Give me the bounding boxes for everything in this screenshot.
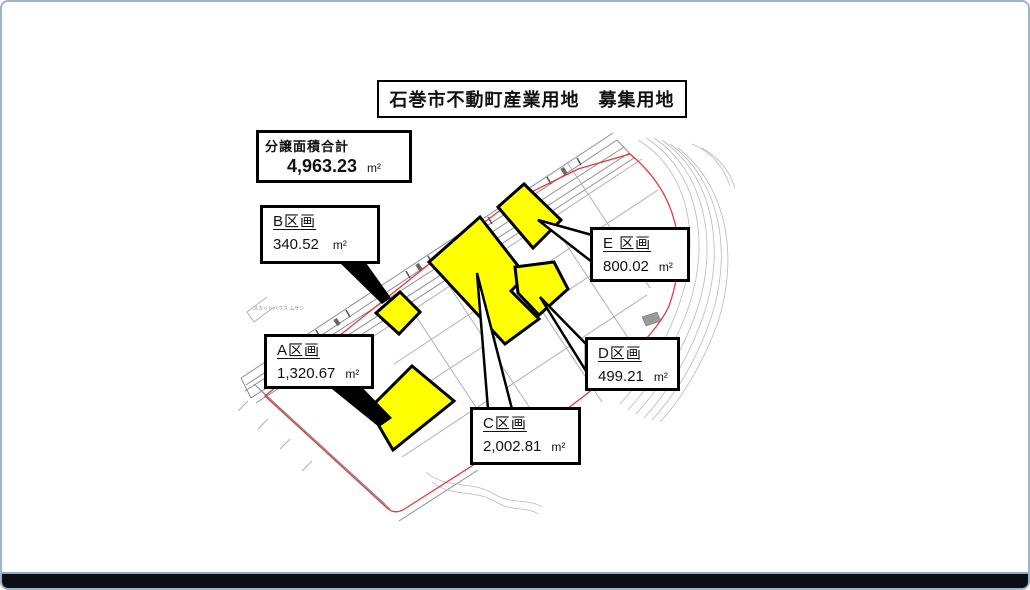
plot-a-label: A区画 — [277, 342, 320, 361]
plot-d-area: 499.21m² — [598, 368, 671, 387]
plot-e-unit: m² — [659, 260, 673, 274]
slide-canvas: スカットハウス ムサシ 石巻市不動町産業用地 募集用地 分譲面積合計 4,963… — [0, 0, 1030, 590]
plot-a-callout: A区画 1,320.67m² — [264, 334, 374, 389]
plot-e-label: E 区画 — [603, 235, 651, 254]
plot-c-area: 2,002.81m² — [483, 438, 572, 457]
total-area-value: 4,963.23m² — [265, 156, 403, 177]
total-area-box: 分譲面積合計 4,963.23m² — [256, 130, 412, 183]
page-title: 石巻市不動町産業用地 募集用地 — [377, 80, 687, 118]
plot-b-callout: B区画 340.52m² — [260, 205, 380, 264]
total-area-label: 分譲面積合計 — [265, 136, 403, 155]
tail-e — [538, 220, 592, 262]
plot-e-number: 800.02 — [603, 258, 649, 275]
plot-c-number: 2,002.81 — [483, 438, 541, 455]
plot-b-label: B区画 — [273, 213, 316, 232]
plot-e-area: 800.02m² — [603, 258, 681, 277]
plot-b-area: 340.52m² — [273, 236, 371, 255]
plot-e-callout: E 区画 800.02m² — [590, 227, 690, 282]
plot-a-area: 1,320.67m² — [277, 365, 365, 384]
plot-a-number: 1,320.67 — [277, 365, 335, 382]
tail-d — [540, 297, 586, 371]
plot-d-number: 499.21 — [598, 368, 644, 385]
total-area-unit: m² — [367, 161, 381, 175]
plot-c-label: C区画 — [483, 415, 527, 434]
plot-d-label: D区画 — [598, 345, 642, 364]
plot-b-unit: m² — [333, 238, 347, 252]
plot-d-unit: m² — [654, 370, 668, 384]
map-tiny-annotation: スカットハウス ムサシ — [253, 305, 304, 312]
total-area-number: 4,963.23 — [287, 156, 357, 176]
plot-c-unit: m² — [551, 440, 565, 454]
plot-a-unit: m² — [345, 367, 359, 381]
plot-b-number: 340.52 — [273, 236, 319, 253]
plot-d-callout: D区画 499.21m² — [585, 337, 680, 391]
plot-c-callout: C区画 2,002.81m² — [470, 407, 581, 465]
